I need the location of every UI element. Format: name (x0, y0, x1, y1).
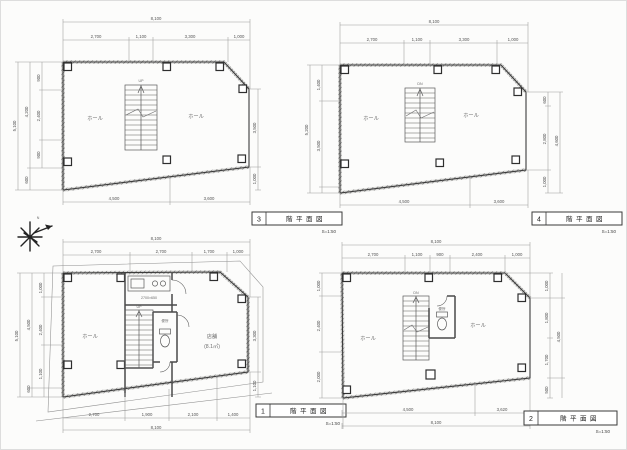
plan-4f-labels: 8,1002,7001,1003,3001,0005,2001,4003,500… (304, 19, 559, 204)
dim-label: 3,300 (459, 37, 470, 42)
building-outline (340, 65, 526, 193)
room-label: ホール (363, 115, 379, 122)
room-label: ホール (82, 333, 98, 340)
dim-top-overall: 8,100 (429, 19, 440, 24)
wc (429, 296, 455, 338)
dim-label: 900 (436, 252, 444, 257)
dim-label: 1,000 (544, 280, 549, 291)
dim-label: 3,500 (316, 140, 321, 151)
room-label: ホール (360, 335, 376, 342)
titleblock-number: 4 (537, 217, 541, 224)
room-label: ホール (188, 113, 204, 120)
titleblock-scale: S=1:50 (596, 429, 611, 434)
plan-4f: 8,1002,7001,1003,3001,0005,2001,4003,500… (304, 19, 622, 234)
dim-label: 600 (26, 385, 31, 393)
dim-label: 4,200 (24, 106, 29, 117)
stair-direction-label: DN (417, 82, 423, 86)
dim-label: 1,000 (316, 280, 321, 291)
columns (343, 274, 526, 394)
dim-label: 3,500 (252, 122, 257, 133)
dim-label: 900 (36, 74, 41, 82)
dim-label: 1,400 (228, 412, 239, 417)
titleblock-number: 1 (261, 409, 265, 416)
room-label: 店舗 (207, 332, 217, 340)
room-label: ホール (470, 322, 486, 329)
dim-label: 1,100 (38, 368, 43, 379)
dim-label: 1,800 (544, 312, 549, 323)
plan-3f-labels: 8,1002,7001,1003,3001,0005,1004,20060090… (12, 16, 257, 201)
dim-label: 1,000 (508, 37, 519, 42)
dim-label: 900 (36, 151, 41, 159)
wc (160, 329, 171, 347)
titleblock-title: 階平面図 (286, 214, 326, 223)
plan-2f: 8,1002,7001,1009002,4001,0001,0002,4002,… (316, 239, 617, 434)
dimension-lines (319, 242, 565, 429)
staircase (125, 85, 157, 150)
doors (160, 280, 189, 372)
dim-label: 2,700 (368, 252, 379, 257)
dim-label: 2,400 (36, 110, 41, 121)
kitchen (128, 276, 170, 291)
dim-bottom-overall: 8,100 (431, 420, 442, 425)
dim-label: 3,600 (204, 196, 215, 201)
dim-label: 1,000 (252, 173, 257, 184)
dim-label: 600 (542, 96, 547, 104)
floor-plan-sheet: 8,1002,7001,1003,3001,0005,1004,20060090… (0, 0, 627, 450)
dim-label: 4,500 (403, 407, 414, 412)
drawing-svg: 8,1002,7001,1003,3001,0005,1004,20060090… (0, 0, 627, 450)
columns (64, 273, 246, 369)
dim-label: 1,000 (234, 34, 245, 39)
dimension-lines (15, 19, 261, 205)
dim-label: 4,600 (554, 135, 559, 146)
dim-label: 5,200 (304, 124, 309, 135)
dim-label: 1,000 (38, 282, 43, 293)
wc-label: 便所 (438, 306, 446, 311)
dim-label: 5,100 (12, 120, 17, 131)
dim-label: 1,000 (542, 176, 547, 187)
titleblock-1f: 1 階平面図 S=1:50 (256, 404, 346, 426)
dim-top-overall: 8,100 (151, 16, 162, 21)
staircase (403, 296, 429, 360)
room-label: ホール (463, 112, 479, 119)
dim-label: 2,700 (156, 249, 167, 254)
plan-1f: 8,1002,7002,7001,7001,0005,1004,5006001,… (14, 236, 346, 433)
dim-label: 3,600 (494, 199, 505, 204)
dim-label: 1,700 (204, 249, 215, 254)
stair-direction-label: UP (139, 79, 145, 83)
dim-label: 2,700 (91, 249, 102, 254)
dim-label: 3,300 (185, 34, 196, 39)
titleblock-number: 2 (529, 416, 533, 423)
dim-label: 1,100 (412, 252, 423, 257)
dim-label: 2,700 (91, 34, 102, 39)
dim-label: 5,100 (14, 330, 19, 341)
dim-label: 1,000 (233, 249, 244, 254)
titleblock-2f: 2 階平面図 S=1:50 (524, 411, 617, 434)
titleblock-scale: S=1:50 (602, 229, 617, 234)
dim-label: 2,000 (316, 371, 321, 382)
room-label: ホール (87, 115, 103, 122)
dim-label: 1,700 (544, 354, 549, 365)
dim-label: 2,700 (89, 412, 100, 417)
titleblock-4f: 4 階平面図 S=1:50 (532, 212, 622, 234)
titleblock-scale: S=1:50 (326, 421, 341, 426)
room-area-label: (8.1㎡) (204, 342, 220, 350)
dim-label: 2,800 (542, 133, 547, 144)
titleblock-title: 階平面図 (290, 406, 330, 415)
dim-label: 1,900 (142, 412, 153, 417)
dim-label: 4,500 (109, 196, 120, 201)
kitchen-counter-note: 2700×650 (141, 296, 157, 300)
dim-label: 1,100 (136, 34, 147, 39)
dim-label: 2,400 (316, 320, 321, 331)
dim-bottom-overall: 8,100 (151, 425, 162, 430)
titleblock-title: 階平面図 (566, 214, 606, 223)
titleblock-title: 階平面図 (560, 414, 600, 423)
dim-label: 3,620 (497, 407, 508, 412)
titleblock-3f: 3 階平面図 S=1:50 (252, 212, 342, 234)
dim-label: 500 (544, 386, 549, 394)
stair-direction-label: UP (137, 305, 143, 309)
building-outline (63, 62, 249, 190)
dim-label: 2,400 (472, 252, 483, 257)
titleblock-number: 3 (257, 217, 261, 224)
dim-top-overall: 8,100 (151, 236, 162, 241)
dim-label: 1,400 (316, 79, 321, 90)
north-label: N (37, 216, 40, 220)
plan-3f: 8,1002,7001,1003,3001,0005,1004,20060090… (12, 16, 342, 234)
dim-label: 600 (24, 176, 29, 184)
dim-label: 1,100 (252, 380, 257, 391)
dim-label: 4,500 (26, 319, 31, 330)
dim-label: 4,500 (556, 331, 561, 342)
dim-label: 1,100 (412, 37, 423, 42)
dim-label: 2,100 (188, 412, 199, 417)
north-arrowhead (45, 225, 52, 231)
dim-label: 2,700 (367, 37, 378, 42)
titleblock-scale: S=1:50 (322, 229, 337, 234)
dim-top-overall: 8,100 (431, 239, 442, 244)
dim-label: 2,400 (38, 324, 43, 335)
staircase (405, 88, 435, 142)
staircase (125, 310, 153, 368)
dim-label: 1,000 (512, 252, 523, 257)
north-arrow: N (18, 216, 52, 251)
stair-direction-label: DN (413, 291, 419, 295)
wc-label: 便所 (161, 318, 169, 323)
dim-label: 4,500 (399, 199, 410, 204)
dim-label: 3,300 (252, 330, 257, 341)
